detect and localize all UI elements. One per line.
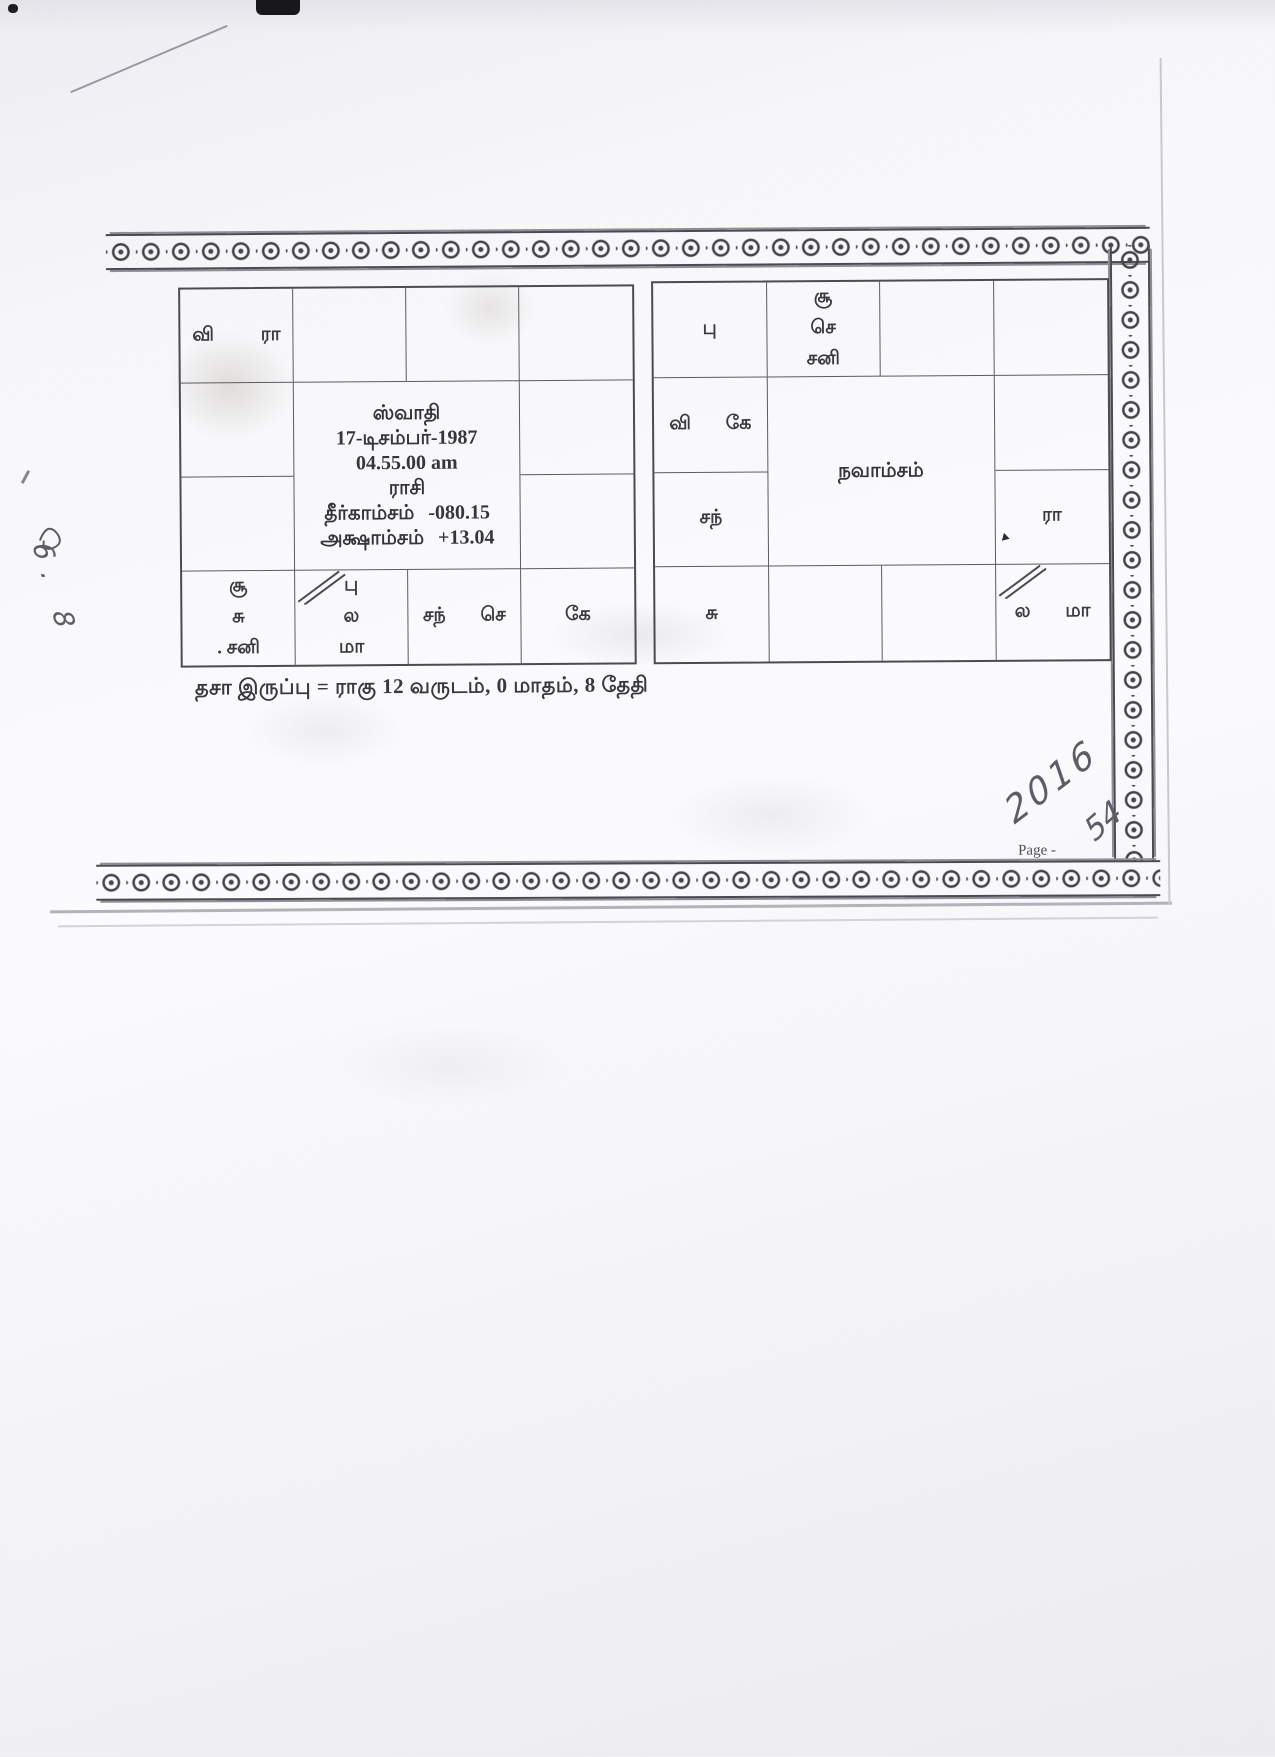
ornamental-border-bottom: [96, 860, 1160, 901]
rasi-cell-r1c2: [293, 288, 407, 383]
planet-label: சூ: [814, 286, 832, 310]
rasi-cell-r3c1: [181, 477, 295, 572]
chart-title-rasi: ராசி: [389, 477, 426, 498]
rasi-cell-r3c4: [520, 474, 634, 569]
navamsa-cell-r4c3: [882, 565, 996, 661]
planet-label: சு: [705, 602, 718, 626]
rasi-cell-r4c2-lagna: பு ல மா: [295, 570, 409, 665]
navamsa-cell-r2c4: [994, 375, 1108, 471]
rasi-cell-r1c1: வி ரா: [180, 289, 294, 384]
navamsa-cell-r1c3: [880, 281, 994, 377]
navamsa-cell-r3c1: சந்: [654, 472, 768, 568]
longitude-label: தீர்காம்சம்: [324, 501, 414, 524]
planet-label: . சனி: [217, 637, 260, 661]
navamsa-cell-r3c4: ரா: [995, 470, 1109, 566]
scanned-horoscope-page: { "rasi": { "center": { "nakshatra": "ஸ்…: [0, 0, 1275, 1756]
navamsa-cell-r4c4-lagna: ல மா: [996, 564, 1110, 660]
planet-label: பு: [702, 318, 716, 342]
chart-title-navamsa: நவாம்சம்: [838, 460, 924, 482]
latitude-value: +13.04: [438, 526, 495, 548]
planet-label: கே: [565, 604, 591, 628]
page-number-label: Page -: [1018, 842, 1056, 859]
navamsa-cell-r4c2: [769, 566, 883, 662]
ornamental-border-right: [1110, 245, 1154, 861]
ornamental-border-top: [106, 227, 1150, 270]
navamsa-cell-r4c1: சு: [655, 567, 769, 663]
longitude-value: -080.15: [428, 501, 490, 523]
navamsa-cell-r2c1: வி கே: [654, 377, 768, 473]
rasi-cell-r2c1: [181, 383, 295, 478]
rasi-cell-r4c4: கே: [521, 568, 635, 663]
navamsa-cell-r1c1: பு: [653, 282, 767, 378]
rasi-cell-r4c3: சந் செ: [408, 569, 522, 664]
rasi-cell-r1c3: [406, 287, 520, 382]
planet-labels: வி கே: [669, 412, 751, 437]
lagna-label: ல: [343, 605, 359, 629]
lagna-marker-icon: [996, 565, 1048, 599]
lagna-mandhi-labels: ல மா: [1015, 600, 1091, 625]
nakshatra-name: ஸ்வாதி: [373, 402, 441, 423]
planet-label: சனி: [807, 348, 840, 372]
rasi-cell-r1c4: [519, 286, 633, 381]
mandhi-label: மா: [339, 636, 364, 660]
navamsa-cell-r1c2: சூ செ சனி: [767, 282, 881, 378]
rasi-cell-r2c4: [520, 380, 634, 475]
planet-labels: வி ரா: [192, 323, 280, 348]
longitude-row: தீர்காம்சம்-080.15: [317, 502, 497, 524]
planet-label: ரா: [1042, 505, 1062, 529]
rasi-chart: வி ரா ஸ்வாதி 17-டிசம்பர்-1987 04.55.00 a…: [178, 284, 637, 667]
latitude-row: அக்ஷாம்சம்+13.04: [313, 527, 501, 549]
dasa-balance-line: தசா இருப்பு = ராகு 12 வருடம், 0 மாதம், 8…: [195, 672, 649, 702]
latitude-label: அக்ஷாம்சம்: [320, 526, 424, 549]
navamsa-cell-r1c4: [994, 280, 1108, 376]
handwritten-margin-note: 6. 8: [25, 540, 84, 641]
planet-label: செ: [810, 317, 835, 341]
planet-label: சந்: [700, 507, 723, 531]
lagna-marker-icon: [295, 570, 347, 604]
planet-label: சூ: [229, 575, 247, 599]
scan-content: வி ரா ஸ்வாதி 17-டிசம்பர்-1987 04.55.00 a…: [0, 0, 1275, 1757]
navamsa-chart: பு சூ செ சனி வி கே நவாம்சம் சந் ரா சு: [651, 278, 1112, 664]
planet-label: சு: [232, 606, 245, 630]
birth-date: 17-டிசம்பர்-1987: [336, 427, 478, 449]
rasi-cell-r4c1: சூ சு . சனி: [182, 571, 296, 666]
navamsa-center-panel: நவாம்சம்: [767, 376, 995, 567]
birth-time: 04.55.00 am: [356, 452, 458, 474]
rasi-center-panel: ஸ்வாதி 17-டிசம்பர்-1987 04.55.00 am ராசி…: [294, 381, 521, 571]
planet-labels: சந் செ: [423, 604, 506, 629]
